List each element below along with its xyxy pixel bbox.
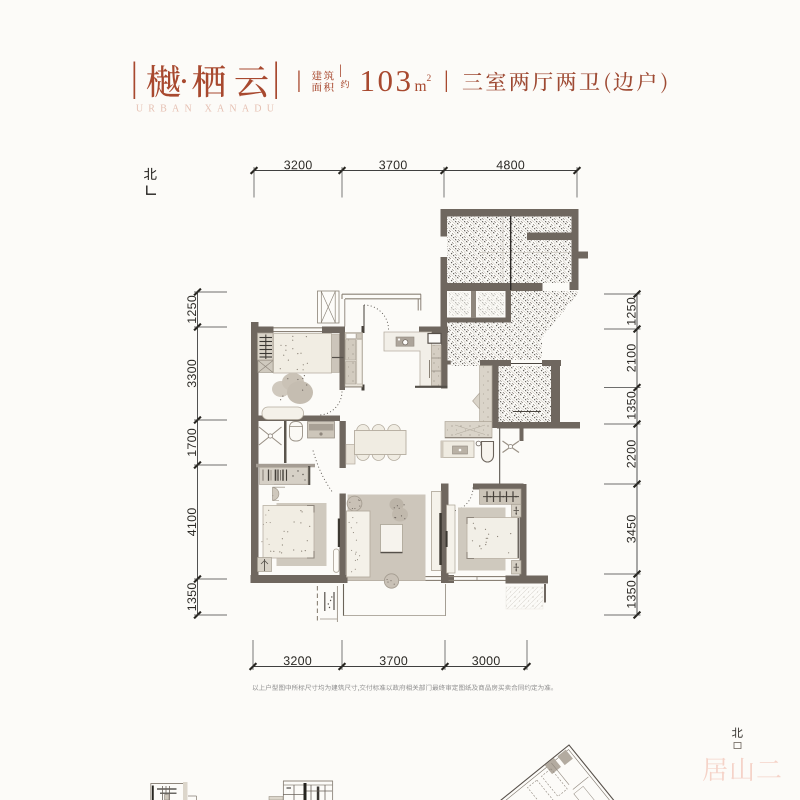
svg-text:m: m <box>415 78 427 95</box>
svg-text:URBAN XANADU: URBAN XANADU <box>136 104 279 115</box>
svg-text:2: 2 <box>427 74 432 84</box>
svg-text:103: 103 <box>360 63 414 98</box>
